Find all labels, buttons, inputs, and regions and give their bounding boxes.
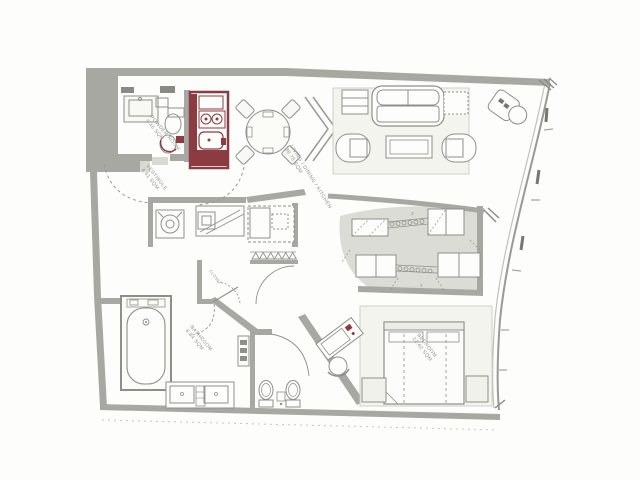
bench: [362, 378, 386, 402]
coffee-table: [386, 136, 432, 158]
closet-door: [213, 287, 238, 302]
utility-band: [156, 206, 296, 335]
kitchen-unit: [190, 92, 228, 168]
kitchen-sink: [199, 132, 223, 149]
lounge-chair: [486, 88, 532, 130]
label-vestibule: VESTIBULE 4.61 SQM: [140, 164, 169, 196]
tag-3: 3: [411, 211, 414, 216]
headboard: [384, 322, 464, 330]
armchair: [336, 134, 370, 162]
floor-plan-drawing: POWDER ROOM 3.46 SQM VESTIBULE 4.61 SQM …: [0, 0, 640, 480]
label-powder-room: POWDER ROOM 3.46 SQM: [144, 114, 181, 155]
label-closet: CLOSET: [208, 269, 222, 286]
desk-chair: [329, 357, 347, 375]
tag-2: 2: [420, 283, 423, 288]
wall-accessory: [121, 87, 134, 93]
label-bathroom: BATHROOM 6.84 SQM: [184, 324, 214, 356]
wardrobe-dashed: [248, 206, 294, 242]
door-swing: [256, 266, 294, 304]
side-table: [342, 90, 368, 114]
dining-table: [246, 110, 290, 154]
hangers: [252, 253, 296, 260]
bed: [384, 322, 464, 404]
door-swing: [271, 334, 309, 376]
bench: [466, 376, 488, 402]
bedroom: [316, 306, 492, 406]
living-room: [333, 86, 532, 174]
wc-fixtures: [259, 334, 309, 407]
floor-plan-page: POWDER ROOM 3.46 SQM VESTIBULE 4.61 SQM …: [0, 0, 640, 480]
svg-text:CLOSET: CLOSET: [208, 269, 222, 286]
desk: [316, 318, 363, 360]
screen-divider: [305, 97, 336, 161]
side-table: [444, 92, 468, 114]
wall-accessory: [160, 86, 175, 93]
label-living-dining-kitchen: LIVING / DINING / KITCHEN 38.75 SQM: [283, 144, 332, 213]
armchair: [442, 134, 476, 162]
toilet-tank: [168, 108, 184, 117]
